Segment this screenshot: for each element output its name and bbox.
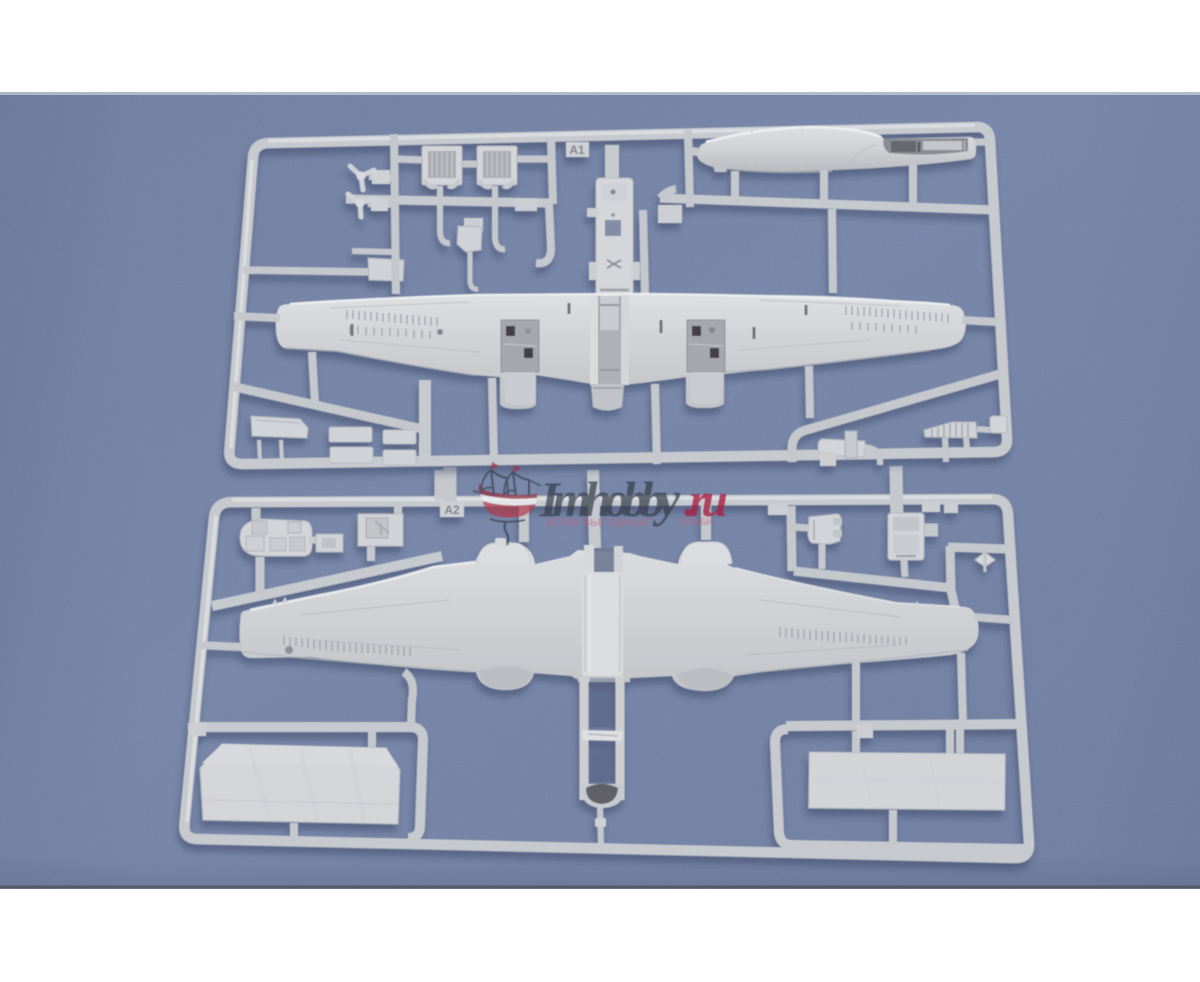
svg-text:A2: A2: [444, 503, 460, 517]
svg-text:ХОББИ: ХОББИ: [679, 517, 715, 528]
svg-text:A1: A1: [569, 143, 585, 157]
svg-text:ВСЕМ ВЫГОДНЫЕ: ВСЕМ ВЫГОДНЫЕ: [546, 517, 652, 529]
